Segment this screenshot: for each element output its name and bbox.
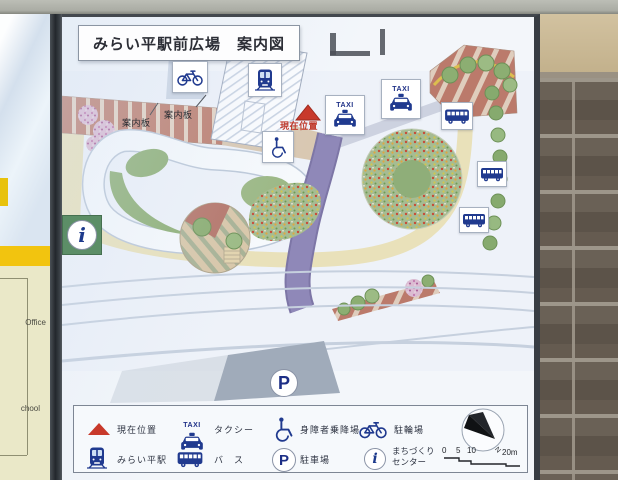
parking-icon: P	[272, 448, 296, 472]
brick-tiles	[540, 78, 618, 480]
wheelchair-icon	[267, 136, 289, 158]
brick-joint	[572, 78, 575, 480]
legend-label: バ ス	[214, 453, 244, 466]
taxi-sign-text: TAXI	[392, 86, 409, 93]
guide-board-label: 案内板	[122, 116, 151, 129]
neighbor-text-school: chool	[0, 404, 40, 413]
taxi-stand-marker: TAXI	[325, 95, 365, 135]
current-location-label: 現在位置	[280, 119, 318, 132]
legend-label: みらい平駅	[117, 453, 167, 466]
photo-of-guide-sign: Office chool	[0, 0, 618, 480]
bus-icon	[462, 212, 486, 228]
guide-map-board: みらい平駅前広場 案内図 TAXI TAXI	[62, 14, 540, 480]
current-location-triangle-icon	[87, 422, 111, 436]
legend-box: 現在位置 TAXI タクシー 身障者乗降場 駐輪場 N みらい平駅 バ ス	[73, 405, 528, 473]
taxi-icon	[388, 93, 414, 113]
taxi-icon	[332, 109, 358, 129]
taxi-sign-text: TAXI	[336, 102, 353, 109]
map-title-box: みらい平駅前広場 案内図	[78, 25, 300, 61]
plan-mark	[380, 29, 385, 55]
neighbor-cream-panel	[0, 266, 50, 480]
flower-garden-circle	[362, 129, 462, 229]
plan-mark	[330, 51, 370, 56]
neighbor-yellow-band	[0, 246, 50, 266]
brick-wall	[540, 14, 618, 480]
legend-label: 現在位置	[117, 423, 157, 436]
train-icon	[85, 446, 109, 470]
guide-board-label: 案内板	[164, 108, 193, 121]
legend-label: 駐輪場	[394, 423, 424, 436]
info-icon: i	[364, 448, 386, 470]
neighbor-inner-frame	[0, 278, 27, 279]
train-icon	[253, 68, 277, 92]
bicycle-parking-marker	[172, 61, 208, 93]
scale-label: 5	[456, 446, 460, 455]
station-marker	[248, 63, 282, 97]
wheelchair-icon	[270, 416, 296, 442]
neighbor-signboard: Office chool	[0, 14, 50, 480]
wall-top-band	[0, 0, 618, 14]
bus-stop-marker	[441, 102, 473, 130]
bus-icon	[480, 166, 504, 182]
scale-label: 0	[442, 446, 446, 455]
sign-frame-post	[50, 14, 62, 480]
scale-label: 10	[467, 446, 476, 455]
wheelchair-marker	[262, 131, 294, 163]
circular-plaza	[180, 203, 250, 273]
legend-label: 駐車場	[300, 453, 330, 466]
neighbor-text-office: Office	[0, 318, 46, 327]
neighbor-inner-frame	[0, 455, 27, 456]
bicycle-icon	[358, 418, 388, 440]
map-title: みらい平駅前広場 案内図	[93, 33, 285, 54]
bus-icon	[176, 450, 204, 468]
taxi-stand-marker: TAXI	[381, 79, 421, 119]
info-icon: i	[67, 220, 97, 250]
stucco-wall	[540, 14, 618, 72]
information-marker: i	[62, 215, 102, 255]
neighbor-inner-frame	[27, 278, 28, 455]
bus-stop-marker	[477, 161, 507, 187]
neighbor-yellow-tab	[0, 178, 8, 206]
parking-icon: P	[270, 369, 298, 397]
bicycle-icon	[176, 67, 204, 87]
bus-stop-marker	[459, 207, 489, 233]
scale-bar: 0 5 10 20m	[442, 446, 526, 472]
legend-label: まちづくりセンター	[392, 446, 440, 467]
taxi-sign-text: TAXI	[183, 422, 200, 429]
bus-icon	[444, 107, 470, 125]
glass-reflection	[0, 14, 50, 246]
legend-label: タクシー	[214, 423, 254, 436]
legend-label: 身障者乗降場	[300, 423, 360, 436]
